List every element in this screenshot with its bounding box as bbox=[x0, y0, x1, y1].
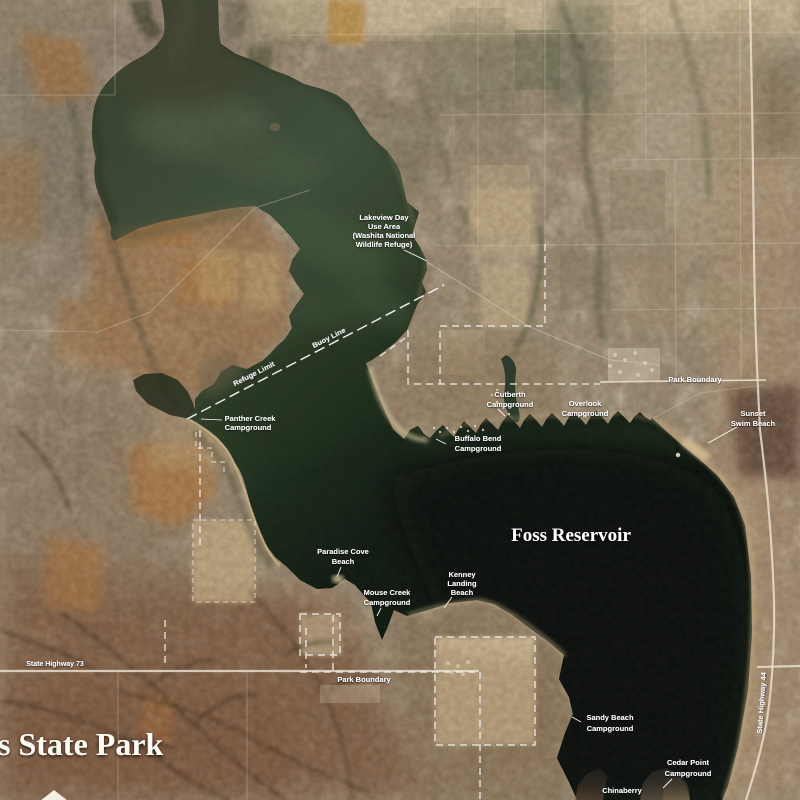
svg-text:s State Park: s State Park bbox=[0, 726, 164, 762]
svg-text:Kenney: Kenney bbox=[448, 570, 476, 579]
svg-text:Use Area: Use Area bbox=[368, 222, 401, 231]
svg-text:Lakeview Day: Lakeview Day bbox=[359, 213, 409, 222]
svg-text:Park Boundary: Park Boundary bbox=[668, 375, 722, 384]
svg-text:Sandy Beach: Sandy Beach bbox=[586, 713, 634, 722]
svg-text:Sunset: Sunset bbox=[740, 409, 766, 418]
svg-text:Park Boundary: Park Boundary bbox=[337, 675, 391, 684]
svg-text:Overlook: Overlook bbox=[569, 399, 602, 408]
svg-text:Wildlife Refuge): Wildlife Refuge) bbox=[356, 240, 413, 249]
svg-text:Campground: Campground bbox=[487, 400, 534, 409]
svg-text:State Highway 73: State Highway 73 bbox=[26, 661, 84, 668]
svg-text:Beach: Beach bbox=[332, 557, 355, 566]
svg-text:Campground: Campground bbox=[225, 423, 272, 432]
svg-text:Campground: Campground bbox=[562, 409, 609, 418]
svg-text:Campground: Campground bbox=[455, 444, 502, 453]
svg-text:Beach: Beach bbox=[451, 588, 474, 597]
svg-text:Campground: Campground bbox=[364, 598, 411, 607]
svg-text:Campground: Campground bbox=[665, 769, 712, 778]
svg-text:(Washita National: (Washita National bbox=[353, 231, 416, 240]
svg-text:Foss Reservoir: Foss Reservoir bbox=[511, 525, 631, 546]
svg-text:Buffalo Bend: Buffalo Bend bbox=[455, 434, 502, 443]
svg-text:Mouse Creek: Mouse Creek bbox=[364, 588, 412, 597]
svg-text:Paradise Cove: Paradise Cove bbox=[317, 547, 369, 556]
svg-text:Cedar Point: Cedar Point bbox=[667, 758, 710, 767]
svg-text:Chinaberry: Chinaberry bbox=[602, 786, 642, 795]
svg-text:Swim Beach: Swim Beach bbox=[731, 419, 776, 428]
svg-text:Landing: Landing bbox=[447, 579, 477, 588]
svg-text:Panther Creek: Panther Creek bbox=[225, 414, 277, 423]
svg-text:Cutberth: Cutberth bbox=[494, 390, 526, 399]
svg-text:Campground: Campground bbox=[587, 724, 634, 733]
